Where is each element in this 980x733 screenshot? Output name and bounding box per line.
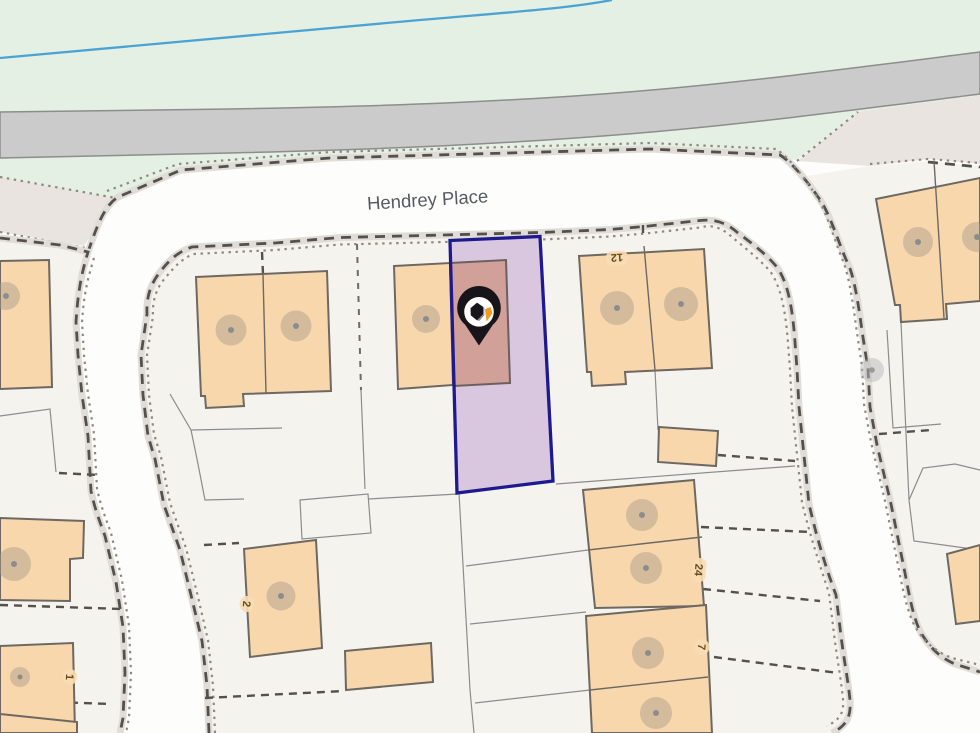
svg-text:7: 7 — [695, 643, 707, 650]
svg-text:1: 1 — [63, 674, 75, 681]
svg-text:24: 24 — [691, 563, 704, 577]
svg-text:12: 12 — [611, 251, 624, 264]
svg-text:2: 2 — [240, 600, 252, 607]
